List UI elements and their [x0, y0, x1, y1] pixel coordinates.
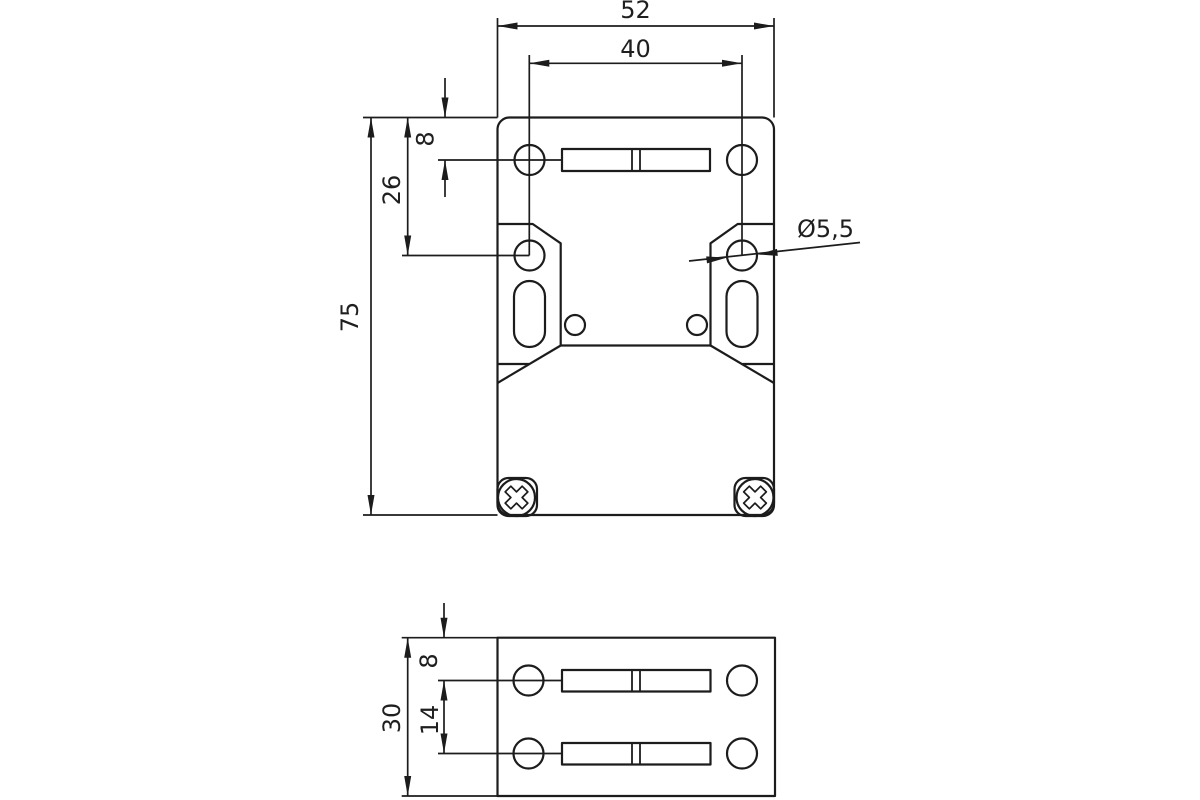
arrowhead-up	[441, 681, 448, 701]
arrowhead-left	[758, 249, 778, 256]
oblong-slot-right	[727, 281, 758, 347]
arrowhead-down	[441, 618, 448, 638]
dim-label-side-row1-offset: 8	[415, 653, 443, 668]
mounting-hole-row2-right	[727, 739, 757, 769]
technical-drawing-canvas: 52 40 8 26 75 Ø5,5	[0, 0, 1200, 800]
pilot-hole-right	[687, 315, 707, 335]
screw-cross-icon	[738, 481, 772, 515]
mounting-hole-row1-right	[727, 666, 757, 696]
arrowhead-down	[404, 236, 411, 256]
dim-label-row1-offset: 8	[412, 131, 440, 146]
dim-label-overall-height: 75	[336, 302, 364, 333]
technical-drawing: 52 40 8 26 75 Ø5,5	[0, 0, 1200, 800]
arrowhead-left	[498, 23, 518, 30]
arrowhead-up	[404, 638, 411, 658]
side-body-outline	[498, 638, 776, 796]
actuator-slot-row1	[562, 670, 711, 692]
screw-cross-icon	[500, 481, 534, 515]
arrowhead-down	[368, 495, 375, 515]
arrowhead-down	[441, 734, 448, 754]
dim-label-row2-offset: 26	[378, 175, 406, 206]
pilot-hole-left	[565, 315, 585, 335]
front-view	[498, 118, 775, 517]
arrowhead-left	[529, 60, 549, 67]
arrowhead-up	[368, 118, 375, 138]
arrowhead-up	[442, 160, 449, 180]
arrowhead-right	[754, 23, 774, 30]
front-body-outline	[498, 118, 775, 516]
arrowhead-right	[722, 60, 742, 67]
dim-label-overall-width: 52	[620, 0, 651, 24]
arrowhead-down	[442, 98, 449, 118]
actuator-slot-front	[562, 149, 710, 171]
dim-label-hole-pitch: 40	[620, 35, 651, 63]
side-view	[498, 638, 776, 796]
front-view-dimensions: 52 40 8 26 75 Ø5,5	[336, 0, 860, 515]
dim-label-hole-diameter: Ø5,5	[797, 215, 854, 243]
oblong-slot-left	[514, 281, 545, 347]
dim-label-row-pitch: 14	[416, 705, 444, 736]
arrowhead-down	[404, 776, 411, 796]
actuator-slot-row2	[562, 743, 711, 765]
arrowhead-up	[404, 118, 411, 138]
dim-label-overall-depth: 30	[378, 703, 406, 734]
